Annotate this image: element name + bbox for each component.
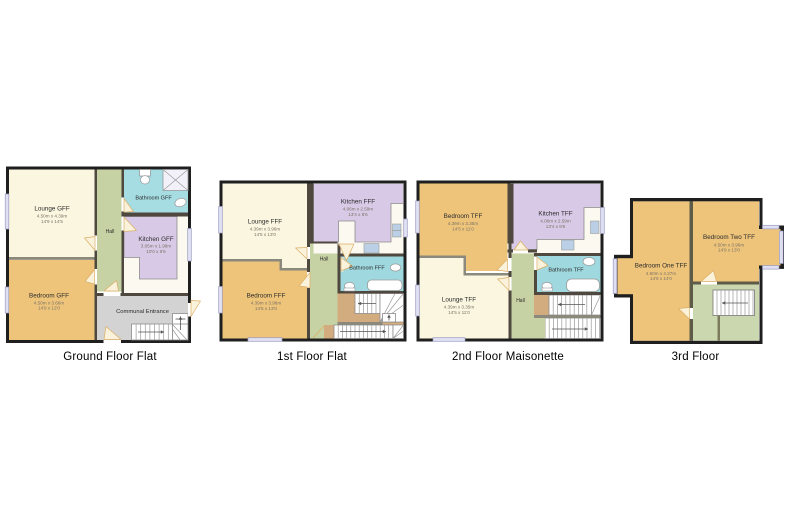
svg-text:Communal Entrance: Communal Entrance <box>116 309 169 315</box>
svg-text:Kitchen TFF: Kitchen TFF <box>538 211 572 218</box>
svg-text:4.50m x 4.27m: 4.50m x 4.27m <box>646 271 677 276</box>
svg-text:3.05m x 1.98m: 3.05m x 1.98m <box>141 244 172 249</box>
svg-text:14'5 x 13'0: 14'5 x 13'0 <box>255 306 277 311</box>
svg-text:Bedroom GFF: Bedroom GFF <box>29 293 69 300</box>
svg-text:10'0 x 6'6: 10'0 x 6'6 <box>146 249 166 254</box>
svg-text:14'9 x 13'0: 14'9 x 13'0 <box>718 248 740 253</box>
svg-text:Bedroom Two TFF: Bedroom Two TFF <box>703 234 755 241</box>
svg-text:13'4 x 8'6: 13'4 x 8'6 <box>546 224 566 229</box>
svg-text:Ground Floor Flat: Ground Floor Flat <box>63 351 157 363</box>
svg-text:Bedroom FFF: Bedroom FFF <box>247 293 286 300</box>
svg-text:Bathroom TFF: Bathroom TFF <box>548 268 584 274</box>
svg-text:Hall: Hall <box>320 257 329 263</box>
svg-text:4.39m x 3.35m: 4.39m x 3.35m <box>444 305 475 310</box>
svg-text:4.39m x 3.96m: 4.39m x 3.96m <box>250 227 281 232</box>
svg-text:4.06m x 2.59m: 4.06m x 2.59m <box>540 219 571 224</box>
svg-text:14'9 x 14'5: 14'9 x 14'5 <box>41 219 63 224</box>
svg-text:Bedroom TFF: Bedroom TFF <box>444 213 483 220</box>
svg-text:Lounge TFF: Lounge TFF <box>442 297 476 304</box>
svg-text:4.39m x 3.35m: 4.39m x 3.35m <box>448 221 479 226</box>
svg-text:14'5 x 11'0: 14'5 x 11'0 <box>452 226 474 231</box>
svg-text:13'4 x 8'6: 13'4 x 8'6 <box>348 212 368 217</box>
svg-text:Hall: Hall <box>106 229 115 235</box>
svg-text:4.50m x 3.96m: 4.50m x 3.96m <box>714 242 745 247</box>
svg-text:Bedroom One TFF: Bedroom One TFF <box>635 263 688 270</box>
svg-text:4.06m x 2.59m: 4.06m x 2.59m <box>343 207 374 212</box>
svg-text:Lounge GFF: Lounge GFF <box>34 206 70 213</box>
svg-text:14'5 x 11'0: 14'5 x 11'0 <box>448 310 470 315</box>
svg-text:14'5 x 13'0: 14'5 x 13'0 <box>254 232 276 237</box>
svg-text:4.50m x 3.66m: 4.50m x 3.66m <box>34 300 65 305</box>
svg-text:4.39m x 3.96m: 4.39m x 3.96m <box>251 301 282 306</box>
svg-text:Kitchen GFF: Kitchen GFF <box>138 236 173 243</box>
svg-text:Bathroom GFF: Bathroom GFF <box>135 196 172 202</box>
svg-text:2nd Floor Maisonette: 2nd Floor Maisonette <box>452 351 564 363</box>
svg-text:3rd Floor: 3rd Floor <box>672 351 720 363</box>
svg-text:Bathroom FFF: Bathroom FFF <box>349 266 385 272</box>
svg-text:Hall: Hall <box>516 298 525 304</box>
svg-text:1st Floor Flat: 1st Floor Flat <box>277 351 348 363</box>
svg-text:14'9 x 12'0: 14'9 x 12'0 <box>38 306 60 311</box>
svg-text:Kitchen FFF: Kitchen FFF <box>341 199 375 206</box>
svg-text:14'9 x 14'0: 14'9 x 14'0 <box>650 276 672 281</box>
svg-text:4.50m x 4.39m: 4.50m x 4.39m <box>37 214 68 219</box>
svg-text:Lounge FFF: Lounge FFF <box>248 219 282 226</box>
